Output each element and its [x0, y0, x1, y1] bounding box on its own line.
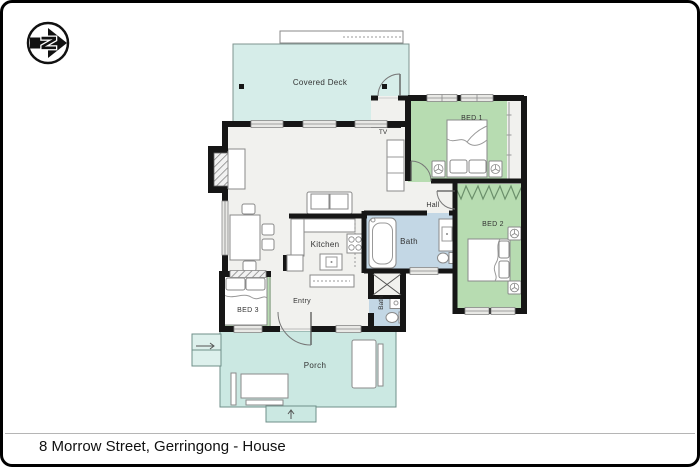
chair [243, 261, 256, 271]
compass-letter: N [37, 35, 60, 50]
caption-divider [5, 433, 695, 434]
chair [262, 239, 274, 250]
dining-table [230, 215, 260, 260]
porch-label: Porch [304, 361, 326, 370]
bath-label: Bath [400, 237, 418, 246]
bed3-label: BED 3 [237, 307, 259, 314]
address-caption: 8 Morrow Street, Gerringong - House [39, 438, 286, 455]
pillow [450, 160, 467, 173]
kitchen-bench [310, 275, 354, 287]
bed1-label: BED 1 [461, 115, 483, 122]
stove [347, 234, 363, 253]
pillow [469, 160, 486, 173]
fireplace [214, 153, 228, 186]
pillow [499, 261, 509, 278]
hall-label: Hall [426, 202, 439, 209]
shelf-unit [387, 140, 404, 191]
tv-label: TV [379, 129, 388, 136]
bed3-furniture [224, 274, 270, 327]
pillow [499, 241, 509, 258]
hearth [228, 149, 245, 189]
pillow [246, 278, 265, 290]
bath-toilet [438, 253, 456, 264]
bathtub [369, 218, 396, 268]
bed2-label: BED 2 [482, 221, 504, 228]
porch-area [192, 331, 396, 422]
floorplan-page: Covered Deck TV BED 1 Hall BED 2 Bath Ki… [0, 0, 700, 467]
covered-deck-label: Covered Deck [293, 78, 348, 87]
sofa [307, 192, 352, 214]
north-arrow-icon: N [28, 23, 68, 63]
bath2-label: Bath [378, 296, 385, 310]
deck-post [382, 84, 387, 89]
deck-post [239, 84, 244, 89]
kitchen-label: Kitchen [311, 240, 340, 249]
floorplan-drawing: Covered Deck TV BED 1 Hall BED 2 Bath Ki… [3, 3, 700, 467]
pillow [226, 278, 245, 290]
island-sink [320, 254, 342, 270]
porch-side-steps [192, 334, 221, 366]
chair [242, 204, 255, 214]
chair [262, 224, 274, 235]
entry-label: Entry [293, 298, 311, 305]
